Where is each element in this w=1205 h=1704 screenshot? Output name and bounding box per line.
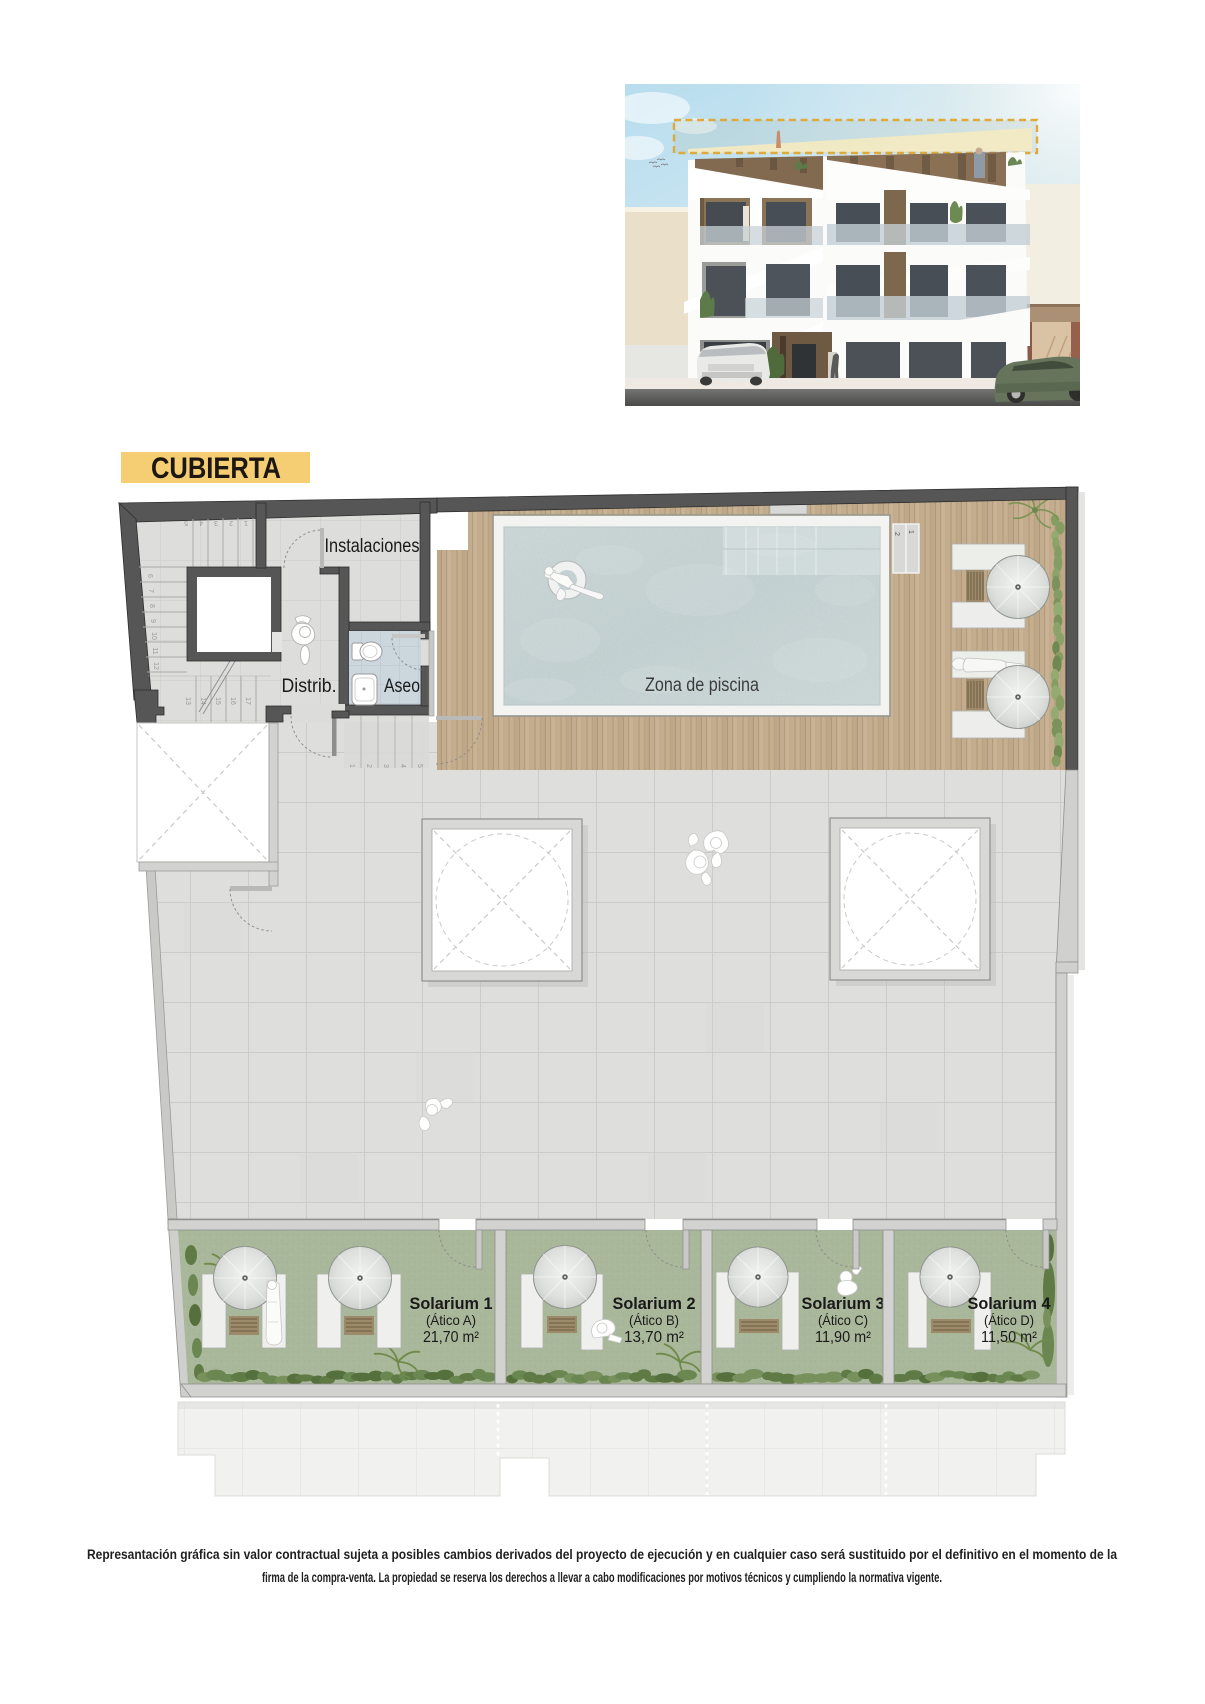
svg-text:2: 2 [893,532,900,536]
svg-text:Instalaciones: Instalaciones [325,536,420,557]
svg-text:Solarium 1: Solarium 1 [410,1294,493,1313]
svg-text:4: 4 [199,519,203,526]
svg-text:1: 1 [348,764,355,768]
svg-text:5: 5 [416,764,423,768]
svg-text:2: 2 [365,764,372,768]
svg-text:(Ático D): (Ático D) [984,1312,1034,1328]
svg-text:16: 16 [229,697,236,705]
svg-text:Distrib.: Distrib. [282,676,337,697]
svg-text:13: 13 [184,697,191,705]
svg-text:14: 14 [199,697,206,705]
svg-text:8: 8 [148,604,155,608]
svg-text:2: 2 [229,519,233,526]
svg-text:Solarium 2: Solarium 2 [613,1294,696,1313]
svg-text:9: 9 [149,619,156,623]
svg-text:(Ático A): (Ático A) [426,1312,476,1328]
svg-text:(Ático C): (Ático C) [818,1312,868,1328]
svg-text:4: 4 [399,764,406,768]
svg-text:Solarium 3: Solarium 3 [802,1294,885,1313]
svg-text:firma de la compra-venta. La p: firma de la compra-venta. La propiedad s… [262,1570,942,1586]
svg-text:11: 11 [151,647,158,654]
svg-text:15: 15 [214,697,221,705]
svg-text:21,70 m²: 21,70 m² [423,1329,479,1346]
svg-text:11,90 m²: 11,90 m² [815,1329,871,1346]
svg-text:5: 5 [184,519,188,526]
svg-text:13,70 m²: 13,70 m² [624,1329,684,1346]
svg-text:1: 1 [244,519,248,526]
svg-text:Aseo: Aseo [384,676,420,697]
svg-text:Solarium 4: Solarium 4 [968,1294,1052,1313]
svg-text:7: 7 [147,589,154,593]
svg-text:(Ático B): (Ático B) [629,1312,679,1328]
svg-text:Represantación gráfica sin val: Represantación gráfica sin valor contrac… [87,1547,1117,1563]
svg-text:CUBIERTA: CUBIERTA [151,452,281,485]
svg-text:6: 6 [146,574,153,578]
svg-text:3: 3 [214,519,218,526]
svg-text:3: 3 [382,764,389,768]
svg-text:12: 12 [152,662,159,670]
svg-text:10: 10 [150,632,157,640]
svg-text:17: 17 [244,697,251,705]
svg-text:11,50 m²: 11,50 m² [981,1329,1037,1346]
svg-text:1: 1 [907,530,914,534]
